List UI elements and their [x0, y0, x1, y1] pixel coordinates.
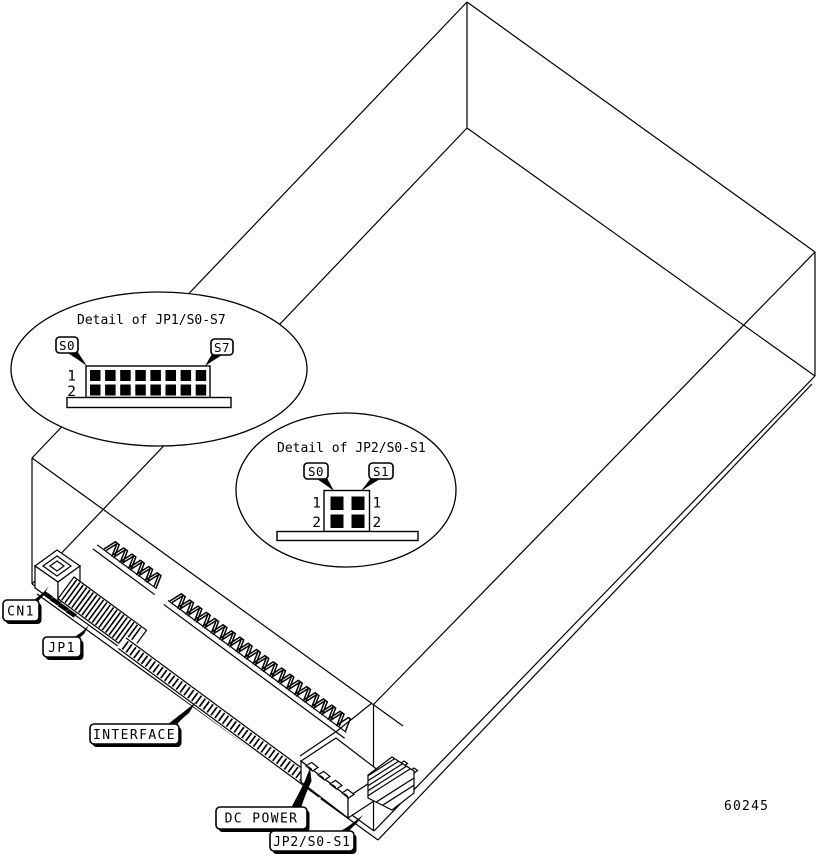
jp1-row2-label: 2	[67, 384, 76, 400]
label-jp1: JP1	[43, 625, 89, 660]
interface-label: INTERFACE	[93, 728, 176, 743]
jp1-header-outline	[86, 366, 210, 398]
jp2-label: JP2/S0-S1	[273, 835, 351, 850]
s1-callout-label: S1	[373, 464, 389, 479]
jp2-row2-left-label: 2	[312, 515, 321, 531]
jp1-pin-row	[93, 534, 166, 595]
jp2-row2-right-label: 2	[373, 515, 382, 531]
s0-callout-label: S0	[308, 464, 324, 479]
jp2-header-base	[277, 532, 418, 541]
s7-callout-label: S7	[214, 340, 230, 355]
detail-bubble-jp1: Detail of JP1/S0-S7 S0 S7 1 2	[11, 292, 307, 446]
jp1-header-base	[67, 398, 231, 408]
interface-lower-pin-band	[115, 635, 329, 800]
figure-number: 60245	[724, 799, 769, 814]
dc-power-label: DC POWER	[225, 812, 299, 827]
hardware-diagram: Detail of JP1/S0-S7 S0 S7 1 2 Detail of …	[0, 0, 816, 857]
bubble-jp2-title: Detail of JP2/S0-S1	[277, 441, 426, 456]
bubble-jp1-title: Detail of JP1/S0-S7	[77, 313, 226, 328]
s0-callout-label: S0	[59, 338, 75, 353]
cn1-label: CN1	[7, 605, 35, 620]
jp2-row1-right-label: 1	[373, 496, 382, 512]
detail-bubble-jp2: Detail of JP2/S0-S1 S0 S1 1 2 1 2	[236, 413, 456, 567]
jp1-label: JP1	[48, 641, 76, 656]
interface-pin-row	[164, 589, 356, 738]
jp1-row1-label: 1	[67, 369, 76, 385]
jp2-row1-left-label: 1	[312, 496, 321, 512]
label-interface: INTERFACE	[90, 702, 196, 747]
